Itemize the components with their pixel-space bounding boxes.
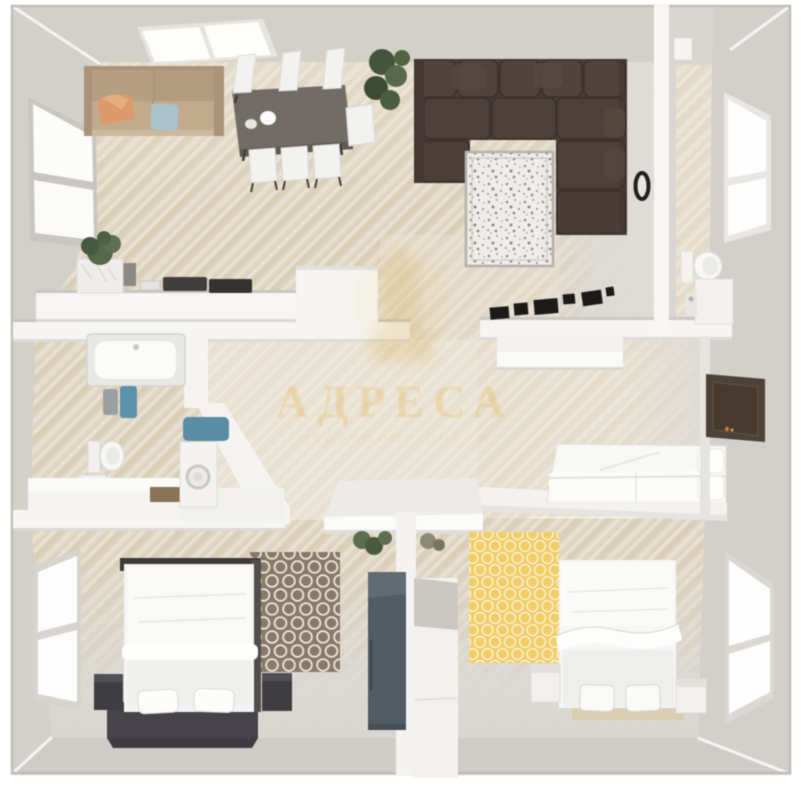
svg-text:НЕДВИЖИМИ ИМОТИ: НЕДВИЖИМИ ИМОТИ [300, 432, 491, 444]
svg-text:АДРЕСА: АДРЕСА [276, 377, 514, 427]
